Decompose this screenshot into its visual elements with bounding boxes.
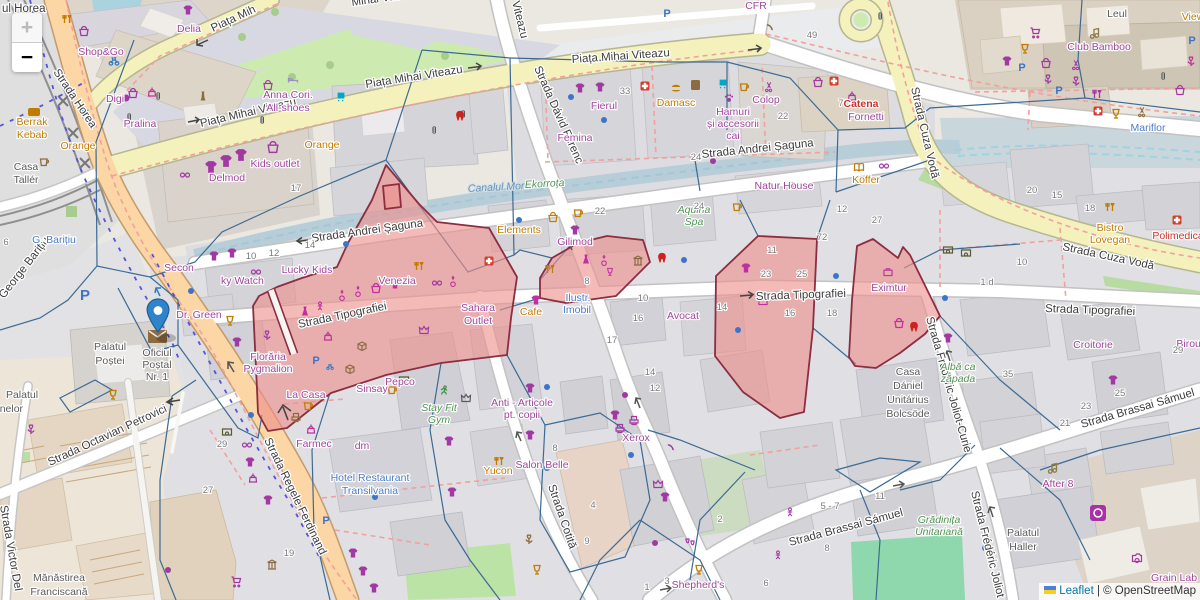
svg-text:16: 16 <box>785 308 796 319</box>
svg-text:Haller: Haller <box>1009 541 1037 553</box>
svg-text:27: 27 <box>872 215 883 226</box>
svg-text:49: 49 <box>807 30 818 41</box>
svg-text:Fornetti: Fornetti <box>848 111 884 123</box>
svg-text:Stay Fit: Stay Fit <box>421 402 458 414</box>
svg-text:1: 1 <box>644 582 649 593</box>
svg-text:Albă ca: Albă ca <box>939 361 975 373</box>
svg-text:dm: dm <box>355 440 370 452</box>
svg-text:Elements: Elements <box>497 224 541 236</box>
svg-text:Farmec: Farmec <box>296 438 332 450</box>
svg-text:4: 4 <box>590 500 595 511</box>
svg-text:14: 14 <box>717 302 728 313</box>
svg-text:și accesorii: și accesorii <box>707 118 759 130</box>
svg-text:Club Bamboo: Club Bamboo <box>1067 41 1131 53</box>
svg-text:24: 24 <box>691 152 702 163</box>
svg-text:Transilvania: Transilvania <box>342 485 398 497</box>
svg-text:Koffer: Koffer <box>852 174 880 186</box>
svg-text:Leul: Leul <box>1107 8 1127 20</box>
svg-text:24: 24 <box>694 201 705 212</box>
svg-text:Unitárius: Unitárius <box>887 394 928 406</box>
svg-text:Poștei: Poștei <box>95 355 124 367</box>
svg-text:Delia: Delia <box>177 23 201 35</box>
svg-text:View: View <box>1182 11 1200 23</box>
svg-text:19: 19 <box>284 548 295 559</box>
svg-text:Palatul: Palatul <box>6 389 38 401</box>
svg-text:10: 10 <box>1017 257 1028 268</box>
svg-text:Berrak: Berrak <box>17 116 49 128</box>
svg-text:Orange: Orange <box>304 139 339 151</box>
svg-text:Kebab: Kebab <box>17 129 48 141</box>
svg-text:Sahara: Sahara <box>461 302 495 314</box>
svg-text:22: 22 <box>778 111 789 122</box>
svg-text:Salon Belle: Salon Belle <box>515 459 568 471</box>
svg-text:Ekorroța: Ekorroța <box>525 177 565 191</box>
svg-text:Delmod: Delmod <box>209 172 245 184</box>
svg-text:20: 20 <box>1027 185 1038 196</box>
svg-text:9: 9 <box>584 536 589 547</box>
svg-text:Hamuri: Hamuri <box>716 106 750 118</box>
svg-text:8: 8 <box>824 543 829 554</box>
svg-text:lefoanelor: lefoanelor <box>0 403 24 415</box>
svg-text:All-shoes: All-shoes <box>266 102 309 114</box>
svg-text:Palatul: Palatul <box>94 341 126 353</box>
svg-text:3: 3 <box>664 576 669 587</box>
svg-text:Fierul: Fierul <box>591 100 617 112</box>
svg-text:Secon: Secon <box>164 262 194 274</box>
svg-text:16: 16 <box>633 313 644 324</box>
svg-text:Tallér: Tallér <box>13 174 39 186</box>
svg-text:11: 11 <box>875 491 885 502</box>
svg-text:Orange: Orange <box>60 140 95 152</box>
svg-text:Avocat: Avocat <box>667 310 699 322</box>
svg-text:Venezia: Venezia <box>378 275 416 287</box>
svg-text:Palatul: Palatul <box>1007 527 1039 539</box>
svg-text:G. Barițiu: G. Barițiu <box>32 234 76 246</box>
svg-text:pt. copii: pt. copii <box>504 409 540 421</box>
svg-text:14: 14 <box>645 367 656 378</box>
svg-text:Dr. Green: Dr. Green <box>176 309 222 321</box>
svg-text:33: 33 <box>620 86 631 97</box>
svg-text:Gym: Gym <box>428 414 450 426</box>
svg-text:Yucon: Yucon <box>483 465 512 477</box>
svg-text:29: 29 <box>217 439 228 450</box>
svg-text:8: 8 <box>552 443 557 454</box>
svg-text:Lovegan: Lovegan <box>1090 234 1130 246</box>
svg-text:cai: cai <box>726 130 739 142</box>
svg-text:Colop: Colop <box>752 94 780 106</box>
svg-text:Outlet: Outlet <box>464 315 492 327</box>
svg-text:CFR: CFR <box>745 0 767 12</box>
svg-text:5 - 7: 5 - 7 <box>820 501 839 512</box>
svg-text:11: 11 <box>767 245 777 256</box>
svg-text:12: 12 <box>269 248 280 259</box>
svg-text:Nr. 1: Nr. 1 <box>146 371 168 383</box>
svg-text:29: 29 <box>1173 345 1184 356</box>
svg-text:25: 25 <box>1115 388 1126 399</box>
svg-text:Femina: Femina <box>557 132 592 144</box>
svg-text:Casa: Casa <box>896 366 921 378</box>
svg-text:6: 6 <box>3 237 8 248</box>
svg-text:15: 15 <box>1052 190 1063 201</box>
svg-text:Pepco: Pepco <box>385 376 415 388</box>
svg-text:22: 22 <box>595 206 606 217</box>
svg-text:P: P <box>80 287 90 304</box>
svg-text:Digi: Digi <box>106 93 124 105</box>
svg-text:Imobil: Imobil <box>563 304 591 316</box>
svg-text:Xerox: Xerox <box>622 432 650 444</box>
svg-text:Damasc: Damasc <box>657 97 696 109</box>
svg-text:21: 21 <box>1060 418 1071 429</box>
svg-text:Ilustr.: Ilustr. <box>565 292 590 304</box>
svg-text:23: 23 <box>761 269 772 280</box>
svg-text:Gilimod: Gilimod <box>557 236 593 248</box>
svg-text:Spa: Spa <box>685 216 704 228</box>
svg-text:Polimedica: Polimedica <box>1152 230 1200 242</box>
svg-text:Unitariană: Unitariană <box>915 526 963 538</box>
svg-text:8: 8 <box>584 276 589 287</box>
svg-text:12: 12 <box>837 204 848 215</box>
svg-text:Florăria: Florăria <box>250 351 286 363</box>
svg-text:27: 27 <box>203 485 214 496</box>
svg-text:Mănăstirea: Mănăstirea <box>33 572 85 584</box>
svg-text:Pygmalion: Pygmalion <box>243 363 292 375</box>
svg-text:18: 18 <box>1085 203 1096 214</box>
svg-text:Anna Cori.: Anna Cori. <box>263 89 313 101</box>
svg-text:Shop&Go: Shop&Go <box>78 46 124 58</box>
svg-text:Poștal: Poștal <box>142 359 171 371</box>
svg-text:Anti - Articole: Anti - Articole <box>491 397 553 409</box>
svg-text:Croitorie: Croitorie <box>1073 339 1113 351</box>
svg-text:Shepherd's: Shepherd's <box>672 579 725 591</box>
svg-text:Eximtur: Eximtur <box>871 282 907 294</box>
svg-text:zăpada: zăpada <box>940 373 976 385</box>
svg-text:Catena: Catena <box>843 98 878 110</box>
svg-text:Cafe: Cafe <box>520 306 542 318</box>
svg-text:12: 12 <box>650 383 661 394</box>
svg-text:Pralina: Pralina <box>124 118 157 130</box>
svg-text:17: 17 <box>291 183 302 194</box>
svg-text:Hotel Restaurant: Hotel Restaurant <box>331 472 410 484</box>
svg-text:25: 25 <box>797 269 808 280</box>
svg-text:17: 17 <box>607 335 618 346</box>
svg-text:Dániel: Dániel <box>893 380 923 392</box>
svg-text:18: 18 <box>827 308 838 319</box>
svg-text:Sinsay: Sinsay <box>356 383 388 395</box>
svg-text:1 d: 1 d <box>980 277 993 288</box>
svg-text:After 8: After 8 <box>1043 478 1074 490</box>
svg-text:Grădinița: Grădinița <box>918 514 961 526</box>
svg-text:Casa: Casa <box>14 161 39 173</box>
svg-text:10: 10 <box>246 251 257 262</box>
svg-text:7: 7 <box>838 98 843 109</box>
svg-text:Mariflor: Mariflor <box>1130 122 1166 134</box>
svg-text:35: 35 <box>1003 369 1014 380</box>
svg-text:Franciscană: Franciscană <box>30 586 87 598</box>
svg-text:14: 14 <box>305 240 316 251</box>
svg-text:ky Watch: ky Watch <box>218 275 264 287</box>
svg-text:Bolcsöde: Bolcsöde <box>886 408 929 420</box>
svg-text:Kids outlet: Kids outlet <box>250 158 299 170</box>
svg-text:Lucky Kids: Lucky Kids <box>282 264 333 276</box>
svg-text:72: 72 <box>817 232 828 243</box>
svg-text:Natur House: Natur House <box>755 180 814 192</box>
svg-text:6: 6 <box>763 578 768 589</box>
svg-text:2: 2 <box>717 514 722 525</box>
svg-text:23: 23 <box>1081 401 1092 412</box>
svg-text:10: 10 <box>638 293 649 304</box>
svg-text:La Casa: La Casa <box>286 389 325 401</box>
svg-text:Oficiul: Oficiul <box>142 347 171 359</box>
svg-text:Bistro: Bistro <box>1097 222 1124 234</box>
